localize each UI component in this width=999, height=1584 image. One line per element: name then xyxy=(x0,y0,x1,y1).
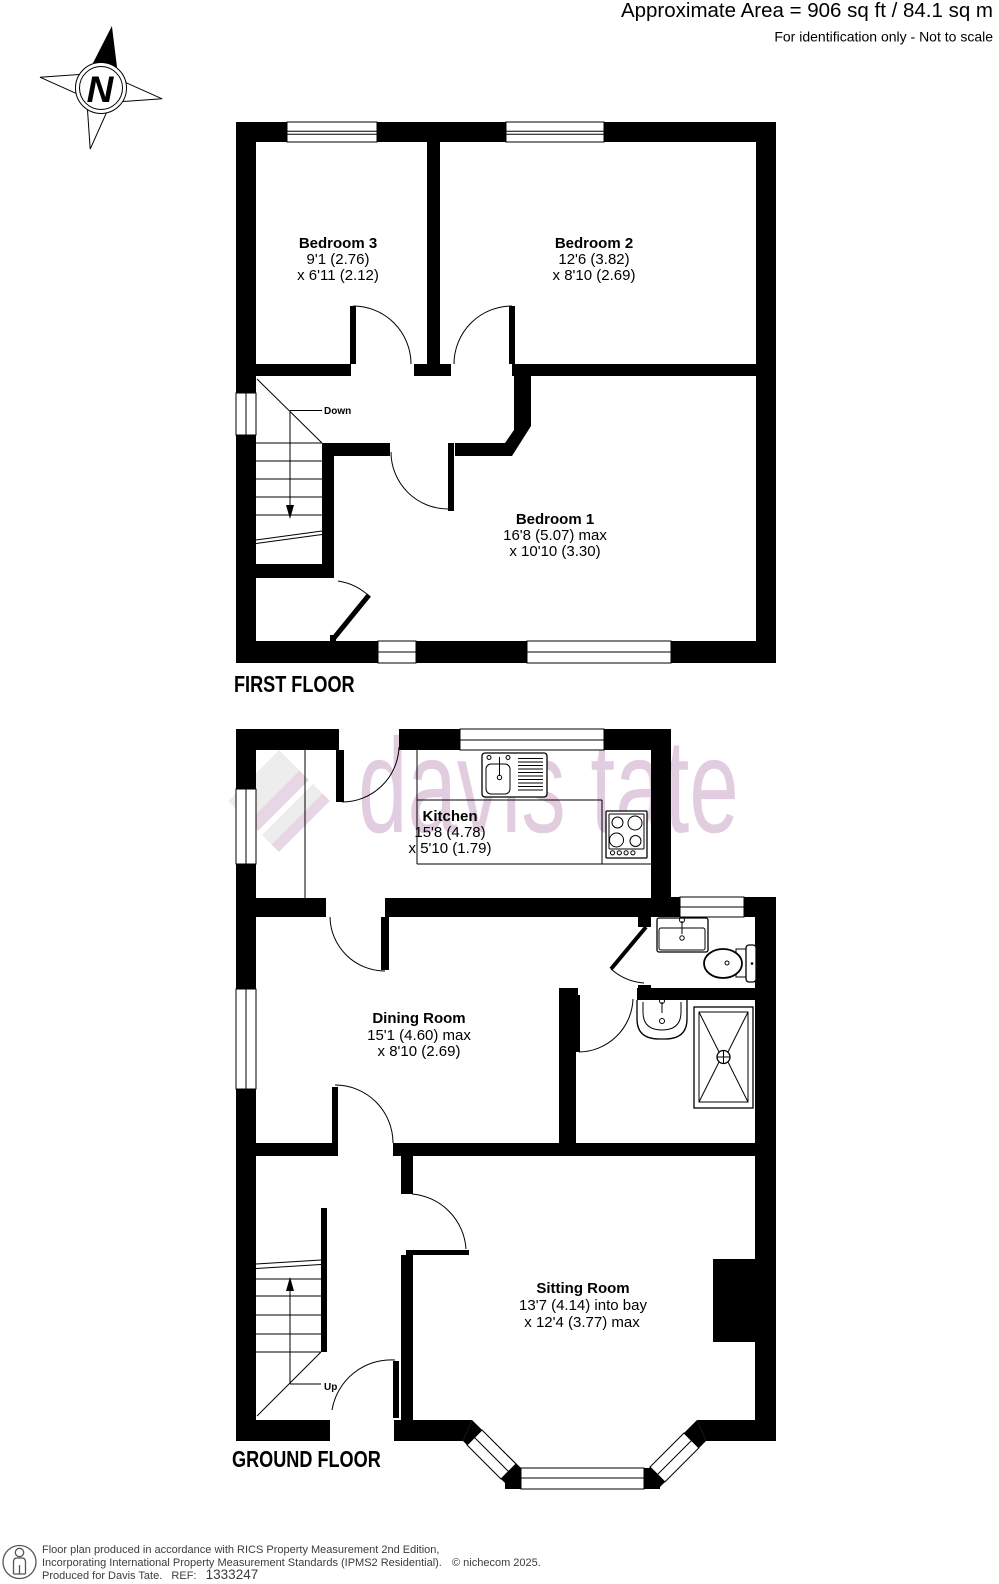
svg-text:x 12'4 (3.77) max: x 12'4 (3.77) max xyxy=(524,1314,640,1331)
svg-text:Kitchen: Kitchen xyxy=(422,808,477,825)
svg-text:Bedroom 2: Bedroom 2 xyxy=(555,235,633,252)
svg-text:GROUND FLOOR: GROUND FLOOR xyxy=(232,1447,381,1473)
svg-text:15'1 (4.60) max: 15'1 (4.60) max xyxy=(367,1027,471,1044)
svg-text:Dining Room: Dining Room xyxy=(372,1010,465,1027)
svg-text:16'8 (5.07) max: 16'8 (5.07) max xyxy=(503,527,607,544)
svg-text:x 5'10 (1.79): x 5'10 (1.79) xyxy=(409,840,492,857)
svg-text:Bedroom 1: Bedroom 1 xyxy=(516,511,594,528)
svg-text:Floor plan produced in accorda: Floor plan produced in accordance with R… xyxy=(42,1544,439,1556)
svg-text:Down: Down xyxy=(324,406,351,417)
svg-text:Sitting Room: Sitting Room xyxy=(536,1280,629,1297)
svg-text:FIRST FLOOR: FIRST FLOOR xyxy=(234,672,355,698)
svg-text:Approximate Area = 906 sq ft /: Approximate Area = 906 sq ft / 84.1 sq m xyxy=(621,0,993,22)
svg-text:N: N xyxy=(87,69,115,110)
svg-text:Up: Up xyxy=(324,1382,337,1393)
svg-text:13'7 (4.14) into bay: 13'7 (4.14) into bay xyxy=(519,1297,647,1314)
svg-text:x 10'10 (3.30): x 10'10 (3.30) xyxy=(509,543,600,560)
svg-text:© nichecom 2025.: © nichecom 2025. xyxy=(452,1557,541,1569)
svg-text:Bedroom 3: Bedroom 3 xyxy=(299,235,377,252)
svg-text:12'6 (3.82): 12'6 (3.82) xyxy=(558,251,629,268)
svg-text:x 6'11 (2.12): x 6'11 (2.12) xyxy=(297,267,379,284)
svg-text:9'1 (2.76): 9'1 (2.76) xyxy=(307,251,370,268)
svg-text:For identification only - Not: For identification only - Not to scale xyxy=(774,29,993,45)
svg-text:Produced for Davis Tate. REF: Produced for Davis Tate. REF: 1333247 xyxy=(42,1567,258,1582)
svg-text:x 8'10 (2.69): x 8'10 (2.69) xyxy=(378,1043,461,1060)
svg-text:x 8'10 (2.69): x 8'10 (2.69) xyxy=(553,267,636,284)
svg-text:15'8 (4.78): 15'8 (4.78) xyxy=(414,824,485,841)
